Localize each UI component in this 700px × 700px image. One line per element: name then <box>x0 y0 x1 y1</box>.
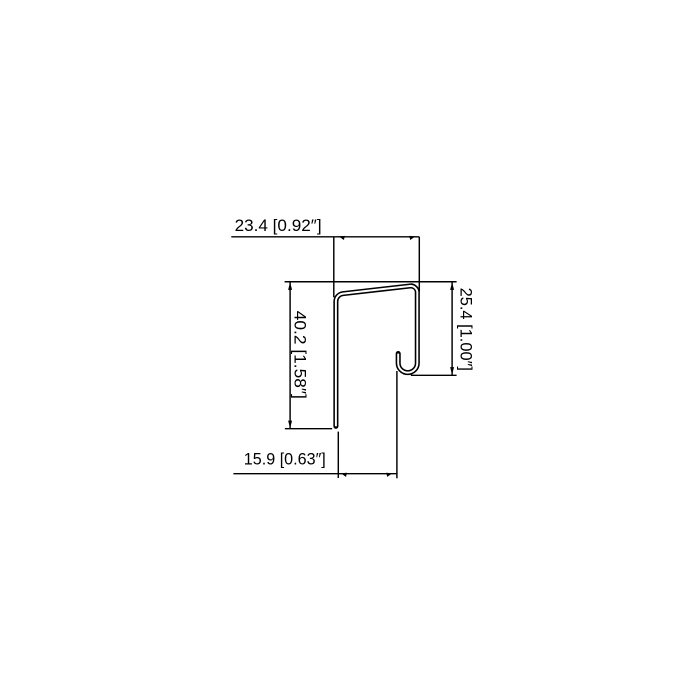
svg-text:40.2 [1.58″]: 40.2 [1.58″] <box>291 311 310 399</box>
svg-text:15.9 [0.63″]: 15.9 [0.63″] <box>244 449 326 468</box>
svg-text:25.4 [1.00″]: 25.4 [1.00″] <box>456 288 475 371</box>
svg-text:23.4 [0.92″]: 23.4 [0.92″] <box>235 216 322 235</box>
